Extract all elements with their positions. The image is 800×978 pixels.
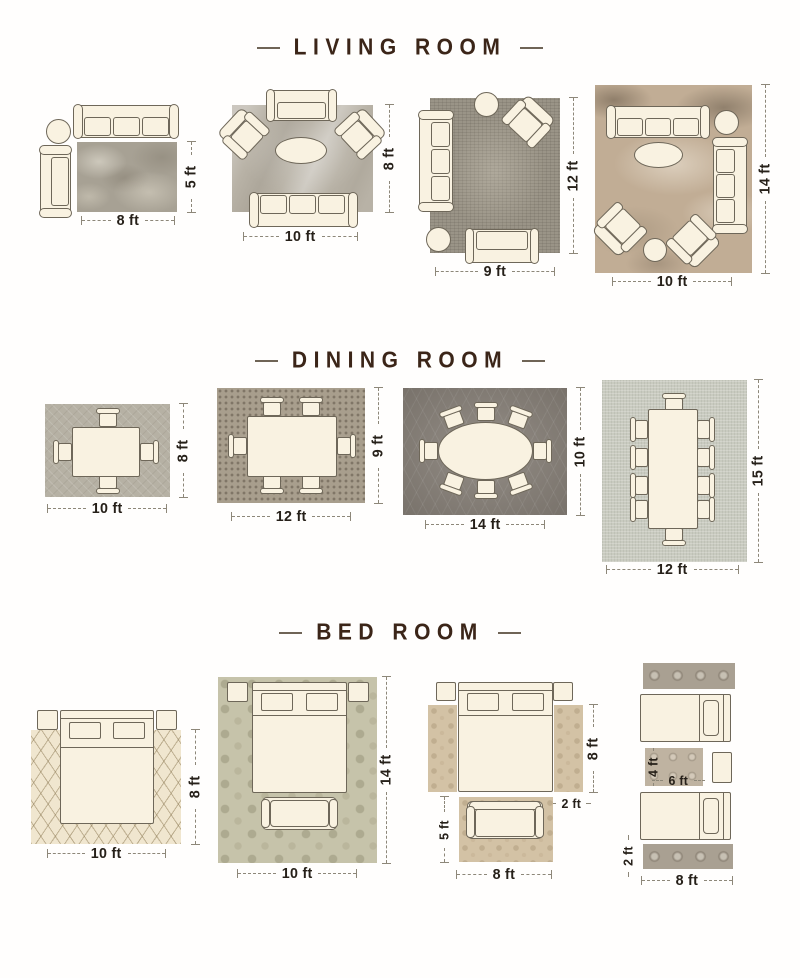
accent-rug-width-label: 6 ft <box>669 774 689 787</box>
dim-line <box>642 880 670 881</box>
runner-rug <box>643 844 733 869</box>
dim-line <box>628 835 629 840</box>
dim-line <box>694 780 705 781</box>
dim-line <box>628 872 629 877</box>
blanket-line <box>699 694 700 742</box>
rug-size-guide: LIVING ROOM 5 ft 8 ft <box>0 0 800 978</box>
pillow <box>703 700 719 736</box>
accent-rug-width-dimension: 6 ft <box>652 772 705 788</box>
runner-rug <box>643 663 735 689</box>
twin-bed <box>640 694 731 742</box>
width-label: 8 ft <box>676 873 699 888</box>
bed-layout-twin-runners: 4 ft 6 ft 2 ft 8 ft <box>0 0 800 978</box>
twin-bed <box>640 792 731 840</box>
dim-line <box>704 880 732 881</box>
width-dimension: 8 ft <box>642 872 732 888</box>
runner-width-label: 2 ft <box>620 843 636 869</box>
headboard-line <box>723 694 724 742</box>
dim-line <box>652 780 663 781</box>
nightstand <box>712 752 732 783</box>
pillow <box>703 798 719 834</box>
blanket-line <box>699 792 700 840</box>
runner-width-dimension: 2 ft <box>620 835 636 877</box>
dim-line <box>653 748 654 751</box>
headboard-line <box>723 792 724 840</box>
